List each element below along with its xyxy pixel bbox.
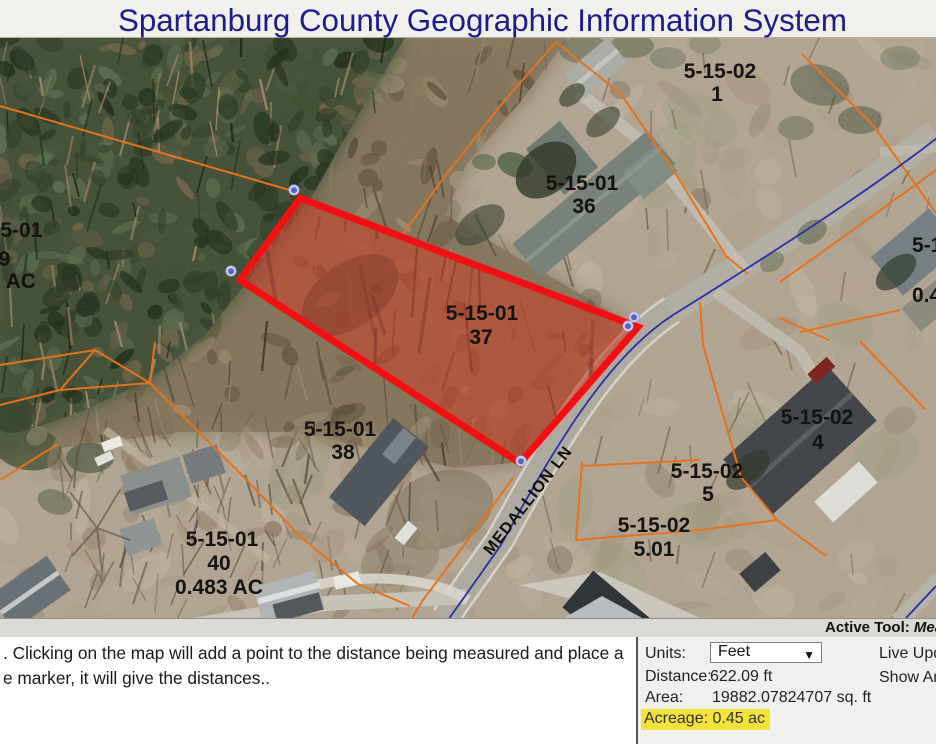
svg-text:0.483 AC: 0.483 AC: [175, 576, 263, 599]
svg-text:36: 36: [572, 195, 595, 218]
svg-text:0.45: 0.45: [912, 284, 936, 307]
svg-text:5-15-02: 5-15-02: [781, 406, 853, 429]
svg-text:5-15-01: 5-15-01: [304, 418, 377, 441]
svg-text:39: 39: [0, 248, 10, 271]
svg-text:0.483 AC: 0.483 AC: [0, 270, 36, 293]
svg-text:5-15-01: 5-15-01: [546, 172, 619, 195]
svg-text:37: 37: [469, 326, 492, 349]
svg-text:5-15-01: 5-15-01: [186, 528, 259, 551]
svg-text:1: 1: [711, 83, 723, 106]
svg-text:5-15-02: 5-15-02: [618, 514, 690, 537]
svg-text:5.01: 5.01: [634, 538, 675, 561]
svg-text:5-15-02: 5-15-02: [912, 234, 936, 257]
svg-text:5: 5: [702, 483, 714, 506]
svg-text:38: 38: [331, 441, 355, 464]
svg-text:40: 40: [207, 552, 230, 575]
svg-text:5-15-01: 5-15-01: [0, 219, 43, 242]
svg-text:5-15-02: 5-15-02: [684, 60, 756, 83]
svg-text:5-15-01: 5-15-01: [446, 302, 519, 325]
svg-text:5-15-02: 5-15-02: [671, 460, 743, 483]
svg-text:4: 4: [812, 431, 824, 454]
